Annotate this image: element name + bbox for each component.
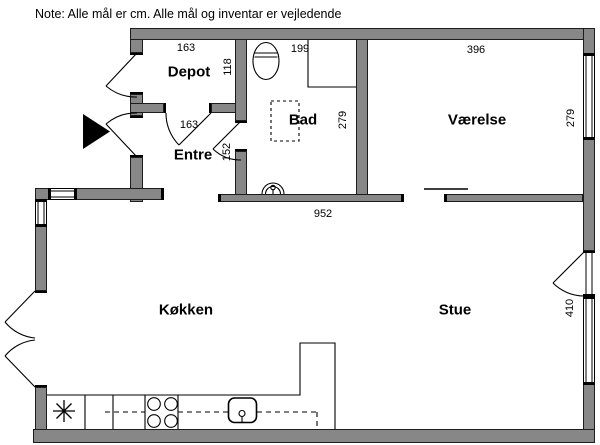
dimension-vaerelse-width: 396 xyxy=(467,44,485,56)
appliance-dashed-line xyxy=(105,412,317,429)
door-jamb xyxy=(35,385,47,387)
door-jamb xyxy=(130,53,143,55)
window-cap xyxy=(584,137,594,139)
wall-depot-bad-upper xyxy=(235,39,247,121)
wall-left-upper-1 xyxy=(130,39,143,53)
passage-cap-vaerelse-left xyxy=(401,194,404,202)
wall-right-2 xyxy=(583,139,595,251)
window-pane xyxy=(38,202,45,224)
door-jamb xyxy=(209,103,211,113)
room-label-vaerelse: Værelse xyxy=(448,112,506,129)
door-jamb xyxy=(130,116,143,118)
door-opening-french-doors xyxy=(35,291,47,387)
door-jamb xyxy=(235,121,247,123)
toilet-icon xyxy=(253,43,279,80)
dimension-bad-width: 199 xyxy=(291,43,309,55)
floor-plan: Note: Alle mål er cm. Alle mål og invent… xyxy=(0,0,600,445)
dimension-depot-width: 163 xyxy=(177,42,195,54)
window-pane xyxy=(586,299,593,382)
window-pane xyxy=(586,56,593,137)
passage-cap-entre-kitchen-left xyxy=(161,188,164,200)
passage-cap-entre-kitchen-right xyxy=(218,194,221,202)
room-label-depot: Depot xyxy=(168,64,211,81)
wall-depot-entre-right xyxy=(211,103,236,113)
door-frame xyxy=(586,253,593,294)
wall-middle-right xyxy=(444,194,583,202)
door-opening-stue xyxy=(583,251,595,296)
door-jamb xyxy=(130,155,143,157)
window-stue xyxy=(583,296,595,385)
window-cap xyxy=(584,54,594,56)
dimension-vaerelse-depth: 279 xyxy=(565,109,577,127)
dimension-bad-depth: 279 xyxy=(337,111,349,129)
dimension-entre-width: 163 xyxy=(180,119,198,131)
door-swing-french-bottom xyxy=(5,340,35,387)
room-label-bad: Bad xyxy=(289,112,317,129)
window-cap xyxy=(36,200,46,202)
kitchen-sink-icon xyxy=(229,398,257,423)
wall-left-lower-1 xyxy=(35,226,47,291)
wall-depot-entre-left xyxy=(130,103,164,113)
wall-right-1 xyxy=(583,28,595,54)
window-pane xyxy=(51,191,74,198)
plan-note: Note: Alle mål er cm. Alle mål og invent… xyxy=(35,7,341,21)
bathroom-sink-icon xyxy=(262,183,284,194)
room-label-stue: Stue xyxy=(439,302,472,319)
dimension-living-width: 952 xyxy=(314,208,332,220)
door-jamb xyxy=(35,291,47,293)
window-cap xyxy=(36,224,46,226)
plan-fixtures-overlay xyxy=(0,0,600,445)
door-swing-french-top xyxy=(5,291,35,338)
door-opening-depot-interior xyxy=(164,103,211,113)
door-opening-depot-exterior xyxy=(130,53,143,94)
room-label-koekken: Køkken xyxy=(159,302,213,319)
freezer-star-icon xyxy=(53,400,75,422)
dimension-depot-depth: 118 xyxy=(222,58,234,76)
door-jamb xyxy=(164,103,166,113)
stove-burners-icon xyxy=(148,398,178,428)
kitchen-counter-outline xyxy=(47,343,335,429)
window-cap xyxy=(49,189,51,199)
window-cap xyxy=(584,382,594,384)
wall-kitchen-top xyxy=(76,188,164,200)
room-label-entre: Entre xyxy=(174,147,212,164)
entrance-arrow-icon xyxy=(83,114,110,149)
door-jamb xyxy=(235,149,247,151)
door-swing-stue xyxy=(553,252,584,296)
dimension-entre-depth: 152 xyxy=(221,143,233,161)
door-jamb xyxy=(130,92,143,94)
door-jamb xyxy=(583,251,595,253)
window-cap xyxy=(584,297,594,299)
door-jamb xyxy=(583,294,595,296)
window-cap xyxy=(74,189,76,199)
passage-cap-vaerelse-right xyxy=(444,194,447,202)
wall-bad-vaerelse xyxy=(356,39,368,202)
shower-enclosure-line xyxy=(308,40,356,87)
window-vaerelse xyxy=(583,53,595,140)
window-top-kitchen xyxy=(48,188,77,200)
dimension-stue-depth: 410 xyxy=(564,299,576,317)
door-opening-entre-exterior xyxy=(130,116,143,157)
window-left-kitchen xyxy=(35,199,47,227)
wall-middle-left xyxy=(218,194,404,202)
wall-bottom xyxy=(33,429,595,443)
door-opening-bad xyxy=(235,121,247,151)
